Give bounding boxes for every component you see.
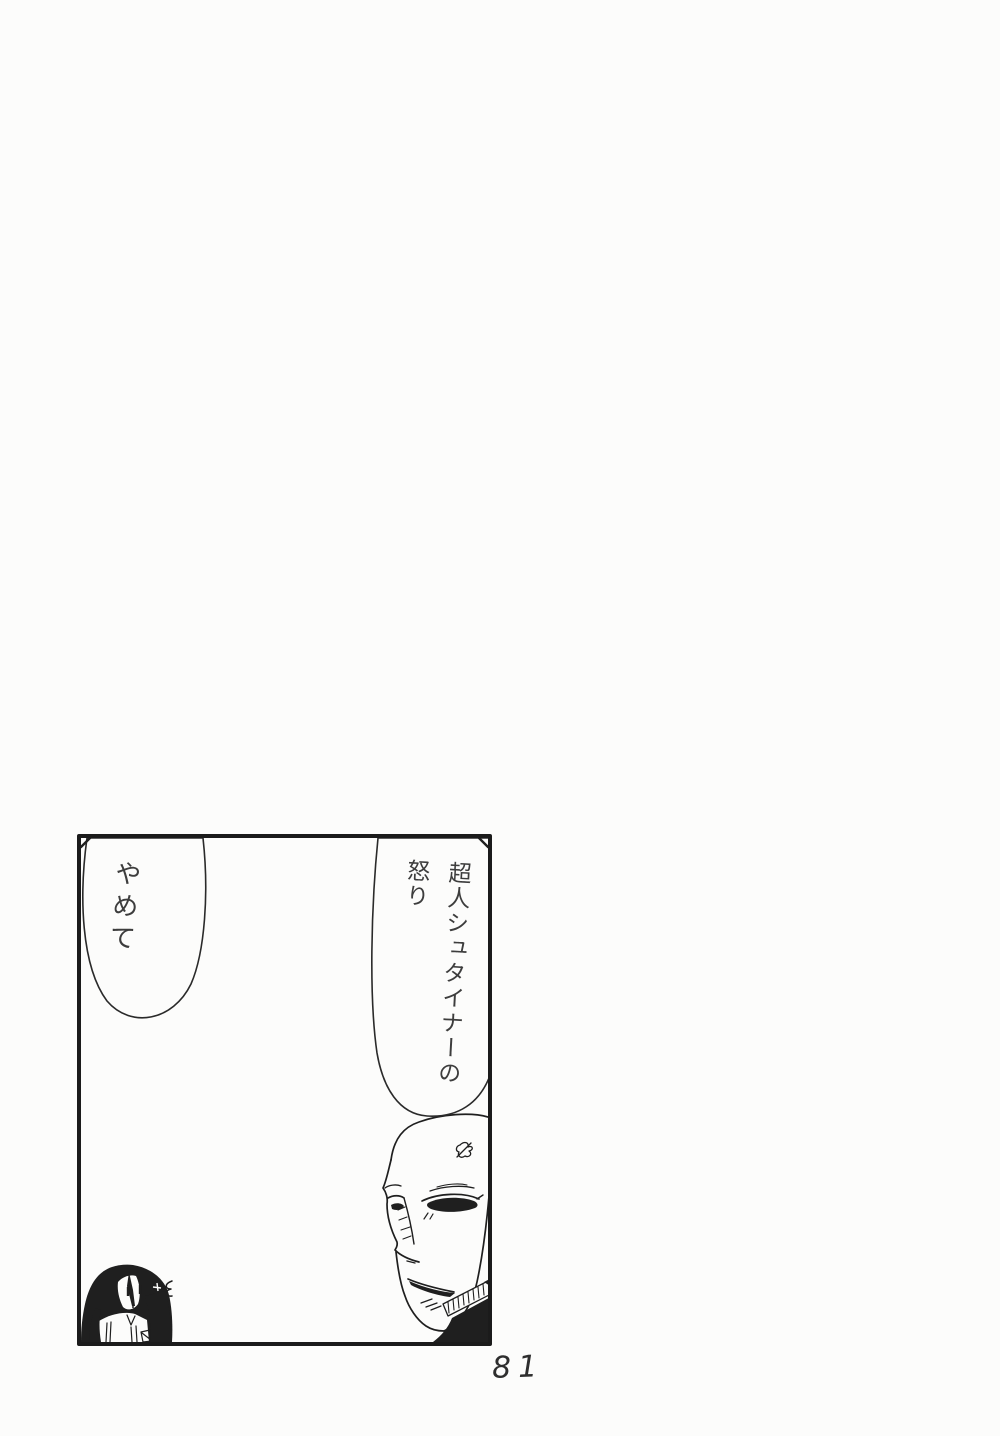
manga-panel: やめて 超人シュタイナーの 怒り bbox=[77, 834, 492, 1346]
page-number: 81 bbox=[491, 1349, 544, 1386]
manga-page: やめて 超人シュタイナーの 怒り 81 bbox=[0, 0, 1000, 1436]
speech-text-right: 超人シュタイナーの 怒り bbox=[382, 858, 478, 1120]
lower-lip-hatching bbox=[421, 1299, 441, 1310]
girl-mouth bbox=[132, 1306, 134, 1308]
girl-drawing bbox=[81, 1265, 172, 1342]
nose-bridge-hatching bbox=[398, 1207, 411, 1239]
speech-text-left-line: やめて bbox=[104, 859, 142, 957]
man-face-drawing bbox=[383, 1114, 488, 1342]
forehead-scribble-mark bbox=[456, 1143, 472, 1158]
